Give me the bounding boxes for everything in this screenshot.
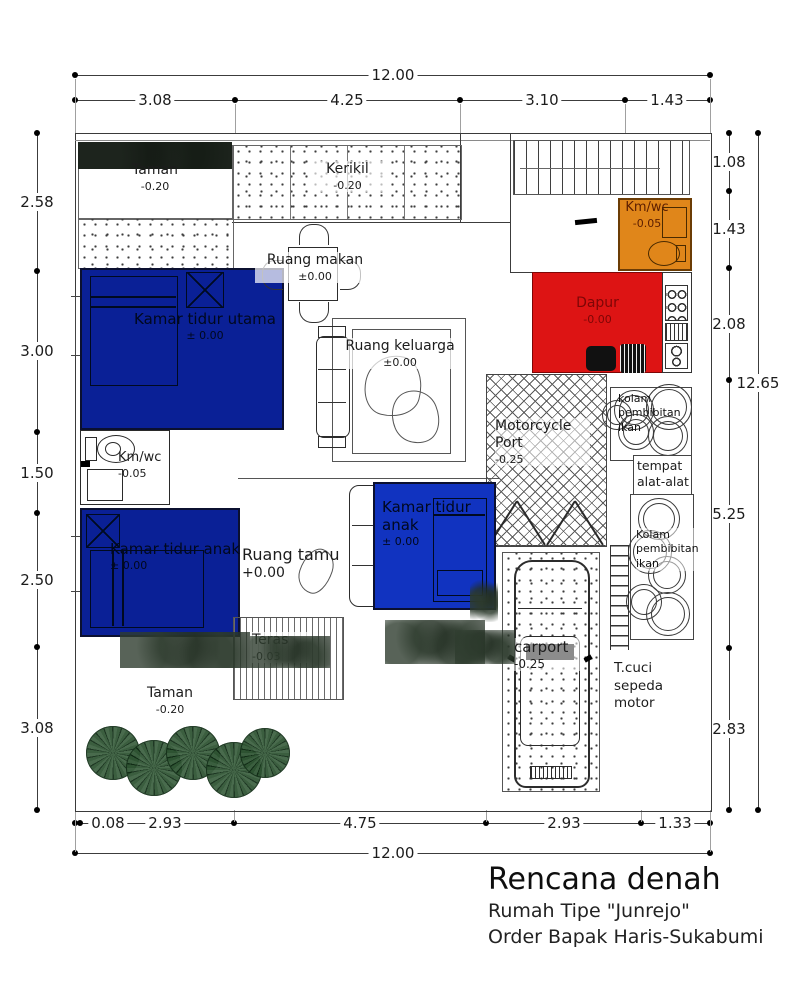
dim-dot <box>34 807 40 813</box>
car-hood-line <box>518 608 582 609</box>
kitchen-counter <box>662 272 692 373</box>
dim-line <box>758 133 759 810</box>
room-label-km-wc-top: Km/wc -0.05 <box>612 200 682 230</box>
chevron-line <box>516 500 546 545</box>
room-elevation: ± 0.00 <box>130 329 280 342</box>
room-name: Ruang makan <box>255 252 375 269</box>
dim-value: 3.00 <box>17 342 56 360</box>
side-table-icon <box>318 326 346 338</box>
dim-dot <box>755 130 761 136</box>
room-name: Kerikil <box>310 161 385 178</box>
dim-value: 1.33 <box>655 814 694 832</box>
dim-dot <box>622 97 628 103</box>
dim-dot <box>726 377 732 383</box>
wall-line <box>232 222 510 223</box>
drain-board-icon <box>665 323 688 341</box>
tree-icon <box>240 728 290 778</box>
window-icon <box>71 296 80 356</box>
stove-icon <box>586 346 616 371</box>
dim-value: 12.65 <box>734 374 783 392</box>
room-label-tempat-alat: tempat alat-alat <box>637 458 692 491</box>
door-mark-icon <box>81 461 90 467</box>
room-name: Km/wc <box>118 450 188 466</box>
dim-value: 2.93 <box>544 814 583 832</box>
dim-dot <box>755 807 761 813</box>
drawing-subtitle-order: Order Bapak Haris-Sukabumi <box>488 926 764 948</box>
dim-dot <box>34 130 40 136</box>
dim-value: 12.00 <box>369 844 418 862</box>
stove-burners-icon <box>665 285 688 321</box>
chair-icon <box>299 224 329 245</box>
chevron-line <box>546 501 576 546</box>
dim-value: 1.43 <box>709 220 748 238</box>
window-icon <box>71 536 80 592</box>
dim-dot <box>726 265 732 271</box>
room-name: Taman <box>120 162 190 179</box>
dim-value: 2.93 <box>145 814 184 832</box>
gate-chevron-icon <box>489 500 545 544</box>
dim-value: 1.08 <box>709 153 748 171</box>
room-name: Kamar tidur utama <box>130 310 280 328</box>
dim-value: 2.08 <box>709 315 748 333</box>
grill-icon <box>620 344 646 373</box>
drawing-title: Rencana denah <box>488 862 721 897</box>
extension-line <box>75 79 76 133</box>
shrub-icon <box>470 580 498 622</box>
dim-value: 12.00 <box>369 66 418 84</box>
side-table-icon <box>186 272 224 308</box>
gate-chevron-icon <box>547 500 603 544</box>
stair-rail <box>520 168 660 169</box>
car-icon <box>514 560 586 784</box>
dim-dot <box>726 130 732 136</box>
room-label-km-wc-kiri: Km/wc -0.05 <box>118 450 188 480</box>
wall-line <box>510 133 511 272</box>
room-name: Kamar tidur anak <box>110 540 260 558</box>
room-label-kamar-tidur-utama: Kamar tidur utama ± 0.00 <box>130 310 280 342</box>
room-elevation: ±0.00 <box>255 270 375 283</box>
room-elevation: -0.20 <box>130 703 210 716</box>
dim-dot <box>232 97 238 103</box>
dim-dot <box>34 268 40 274</box>
ladder-icon <box>610 545 629 650</box>
dim-dot <box>457 97 463 103</box>
extension-line <box>710 810 711 852</box>
shrub-icon <box>455 630 515 664</box>
dim-dot <box>726 645 732 651</box>
room-name: Kolam pembibitan ikan <box>636 528 699 570</box>
room-label-t-cuci: T.cuci sepeda motor <box>614 660 692 713</box>
extension-line <box>625 104 626 133</box>
extension-line <box>235 104 236 133</box>
dim-value: 1.43 <box>647 91 686 109</box>
side-table-icon <box>318 436 346 448</box>
room-elevation: -0.20 <box>310 179 385 192</box>
room-elevation: -0.25 <box>495 453 590 466</box>
toilet-tank-icon <box>85 437 97 461</box>
toilet-tank-icon <box>676 245 686 262</box>
wall-line <box>510 272 532 273</box>
dim-dot <box>34 510 40 516</box>
room-label-carport: carport -0.25 <box>514 638 584 671</box>
dim-value: 2.50 <box>17 571 56 589</box>
room-elevation: ± 0.00 <box>110 559 260 572</box>
dim-dot <box>726 807 732 813</box>
room-label-kamar-tidur-anak-kanan: Kamar tidur anak ± 0.00 <box>382 498 494 548</box>
room-label-kolam-atas: kolam pembibitan ikan <box>618 392 690 435</box>
dim-dot <box>77 820 83 826</box>
room-name: Km/wc <box>612 200 682 216</box>
room-label-ruang-makan: Ruang makan ±0.00 <box>255 252 375 283</box>
dim-value: 4.25 <box>327 91 366 109</box>
room-name: Taman <box>130 685 210 702</box>
room-elevation: -0.05 <box>612 217 682 230</box>
room-name: Ruang keluarga <box>340 338 460 355</box>
room-elevation: -0.05 <box>118 467 188 480</box>
dim-value: 1.50 <box>17 464 56 482</box>
paving-joint <box>404 146 405 219</box>
dim-dot <box>707 72 713 78</box>
room-name: tempat alat-alat <box>637 458 689 489</box>
room-name: Kamar tidur anak <box>382 498 494 534</box>
chevron-line <box>574 500 604 545</box>
room-elevation: ± 0.00 <box>382 535 494 548</box>
room-elevation: -0.20 <box>120 180 190 193</box>
dim-dot <box>726 188 732 194</box>
sink-icon <box>665 343 688 369</box>
room-name: kolam pembibitan ikan <box>618 392 681 434</box>
dim-dot <box>34 429 40 435</box>
wall-line <box>238 478 500 479</box>
room-elevation: ±0.00 <box>340 356 460 369</box>
dim-value: 3.08 <box>135 91 174 109</box>
room-kamar-tidur-utama <box>80 268 284 430</box>
room-label-ruang-tamu: Ruang tamu +0.00 <box>242 545 362 582</box>
room-elevation: -0.25 <box>514 657 584 671</box>
bed-blanket-line <box>90 306 176 308</box>
room-name: Dapur <box>555 295 640 312</box>
extension-line <box>460 104 461 133</box>
dim-value: 2.83 <box>709 720 748 738</box>
room-elevation: -0.00 <box>555 313 640 326</box>
dim-dot <box>72 72 78 78</box>
room-name: Motorcycle Port <box>495 418 590 452</box>
paving-joint <box>290 146 291 219</box>
dim-value: 5.25 <box>709 505 748 523</box>
dim-value: 3.08 <box>17 719 56 737</box>
room-label-kamar-tidur-anak-kiri: Kamar tidur anak ± 0.00 <box>110 540 260 572</box>
car-grille <box>530 766 572 779</box>
room-label-motorcycle-port: Motorcycle Port -0.25 <box>495 418 590 466</box>
floor-plan-sheet: 12.00 3.08 4.25 3.10 1.43 2.58 3.00 1.50… <box>0 0 794 993</box>
room-name: carport <box>514 638 584 656</box>
extension-line <box>75 810 76 852</box>
shrub-icon <box>250 636 330 668</box>
room-label-kolam-bawah: Kolam pembibitan ikan <box>636 528 696 571</box>
room-label-ruang-keluarga: Ruang keluarga ±0.00 <box>340 338 460 369</box>
drawing-subtitle-type: Rumah Tipe "Junrejo" <box>488 900 690 922</box>
room-name: Ruang tamu <box>242 545 362 564</box>
room-label-kerikil: Kerikil -0.20 <box>310 161 385 192</box>
sofa-cushion-line <box>318 402 346 403</box>
dim-value: 2.58 <box>17 193 56 211</box>
gravel-strip <box>78 218 234 269</box>
room-kamar-tidur-anak-kiri <box>80 508 240 637</box>
pond-circle-icon <box>646 592 690 636</box>
room-label-dapur: Dapur -0.00 <box>555 295 640 326</box>
sofa-cushion-line <box>318 369 346 370</box>
bed-pillow-line <box>90 296 176 298</box>
room-name: T.cuci sepeda motor <box>614 660 663 711</box>
room-label-taman-bawah: Taman -0.20 <box>130 685 210 716</box>
room-elevation: +0.00 <box>242 565 362 582</box>
dim-dot <box>34 644 40 650</box>
dim-value: 3.10 <box>522 91 561 109</box>
extension-line <box>710 79 711 133</box>
shrub-icon <box>120 632 250 668</box>
dim-value: 4.75 <box>340 814 379 832</box>
room-label-taman-top: Taman -0.20 <box>120 162 190 193</box>
dim-value: 0.08 <box>88 814 127 832</box>
